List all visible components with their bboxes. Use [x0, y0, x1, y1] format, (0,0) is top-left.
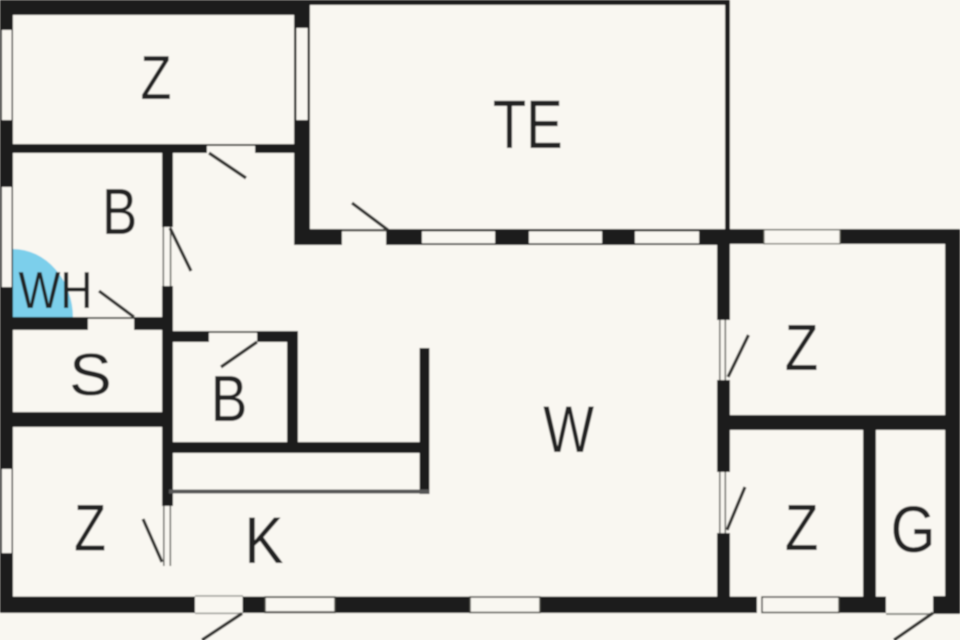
svg-text:Z: Z	[785, 490, 819, 564]
svg-text:WH: WH	[19, 262, 93, 320]
svg-text:K: K	[244, 505, 283, 578]
svg-text:Z: Z	[74, 491, 106, 565]
svg-text:G: G	[891, 493, 936, 567]
svg-text:S: S	[69, 342, 112, 409]
svg-text:B: B	[211, 361, 248, 435]
svg-text:W: W	[543, 393, 594, 466]
svg-text:Z: Z	[785, 310, 819, 384]
svg-text:Z: Z	[141, 44, 172, 113]
svg-text:B: B	[102, 175, 137, 249]
svg-text:TE: TE	[493, 87, 563, 163]
